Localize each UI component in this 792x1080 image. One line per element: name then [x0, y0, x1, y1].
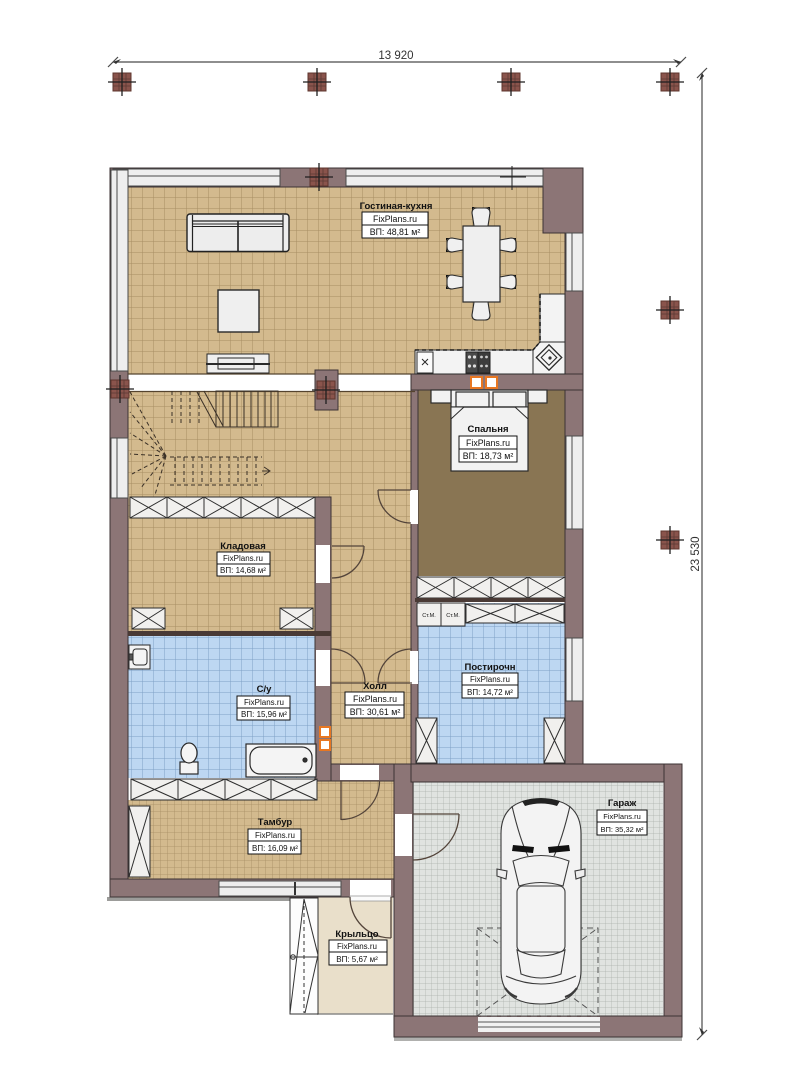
svg-text:FixPlans.ru: FixPlans.ru: [337, 942, 377, 951]
svg-text:Спальня: Спальня: [467, 424, 508, 435]
svg-text:ВП: 35,32 м²: ВП: 35,32 м²: [600, 825, 644, 834]
svg-text:FixPlans.ru: FixPlans.ru: [603, 812, 641, 821]
svg-text:ВП: 30,61 м²: ВП: 30,61 м²: [350, 707, 401, 717]
svg-text:Тамбур: Тамбур: [258, 817, 293, 828]
svg-text:23 530: 23 530: [690, 536, 702, 571]
svg-text:Ст.М.: Ст.М.: [446, 613, 460, 619]
svg-text:13 920: 13 920: [378, 50, 413, 62]
svg-text:С/у: С/у: [257, 684, 273, 695]
svg-text:Постирочн: Постирочн: [465, 662, 516, 673]
svg-text:FixPlans.ru: FixPlans.ru: [255, 831, 295, 840]
svg-text:Кладовая: Кладовая: [220, 541, 266, 552]
svg-text:ВП: 14,68 м²: ВП: 14,68 м²: [220, 566, 266, 575]
svg-text:FixPlans.ru: FixPlans.ru: [223, 554, 263, 563]
svg-text:ВП: 14,72 м²: ВП: 14,72 м²: [467, 688, 513, 697]
svg-text:Холл: Холл: [363, 681, 387, 692]
svg-text:ВП: 5,67 м²: ВП: 5,67 м²: [336, 955, 378, 964]
svg-text:ВП: 48,81 м²: ВП: 48,81 м²: [370, 227, 421, 237]
svg-text:FixPlans.ru: FixPlans.ru: [373, 214, 417, 224]
svg-text:FixPlans.ru: FixPlans.ru: [470, 675, 510, 684]
svg-text:FixPlans.ru: FixPlans.ru: [466, 438, 510, 448]
svg-text:Ст.М.: Ст.М.: [422, 613, 436, 619]
svg-text:ВП: 16,09 м²: ВП: 16,09 м²: [252, 844, 298, 853]
svg-text:Крыльцо: Крыльцо: [335, 929, 378, 940]
svg-text:Гараж: Гараж: [608, 798, 637, 809]
svg-text:FixPlans.ru: FixPlans.ru: [244, 698, 284, 707]
svg-text:ВП: 18,73 м²: ВП: 18,73 м²: [463, 451, 514, 461]
svg-text:FixPlans.ru: FixPlans.ru: [353, 694, 397, 704]
svg-text:ВП: 15,96 м²: ВП: 15,96 м²: [241, 710, 287, 719]
svg-text:Гостиная-кухня: Гостиная-кухня: [360, 201, 433, 212]
